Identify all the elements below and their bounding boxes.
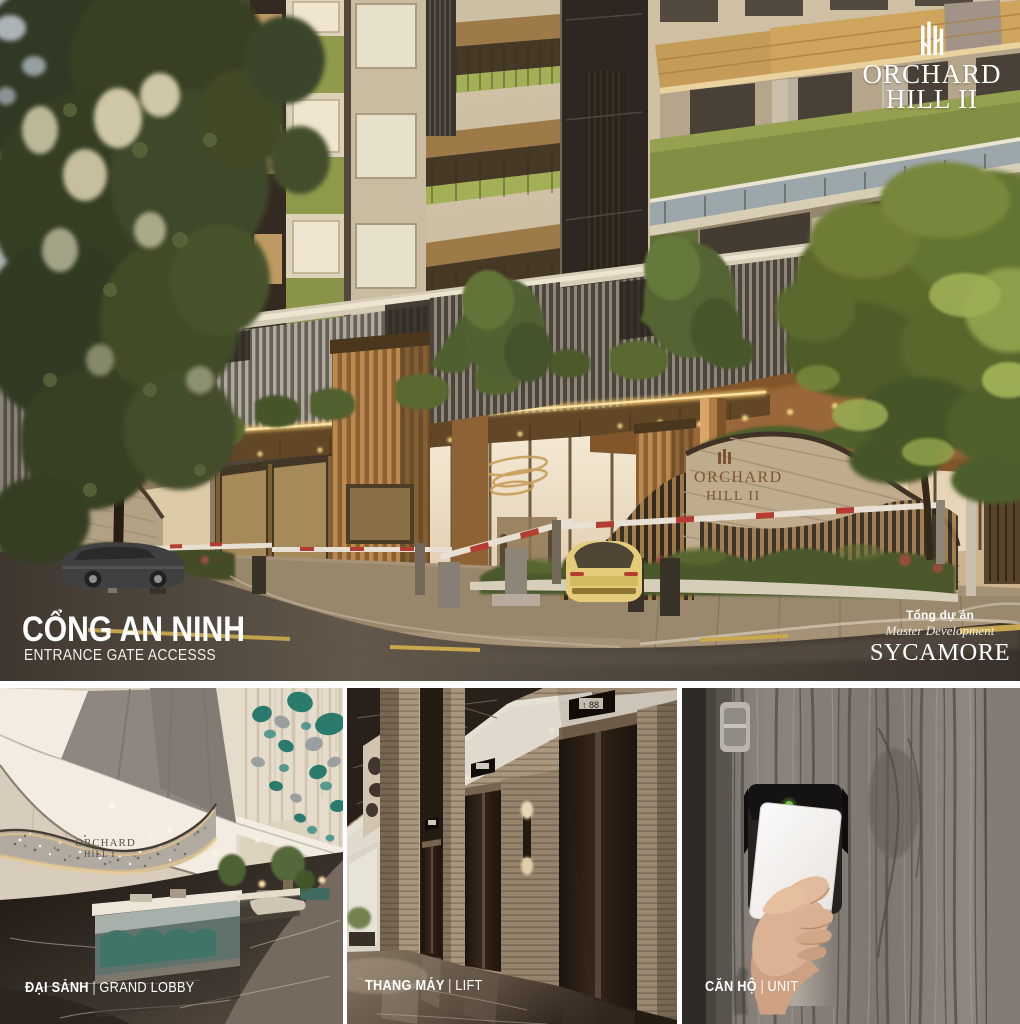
svg-text:ORCHARD: ORCHARD: [75, 837, 136, 849]
svg-text:HILL I: HILL I: [84, 849, 115, 859]
